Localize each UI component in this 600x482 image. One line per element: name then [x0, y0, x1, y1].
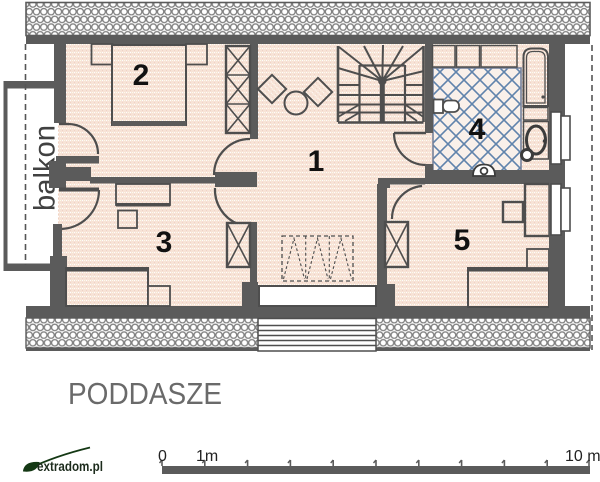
- svg-text:extradom.pl: extradom.pl: [37, 459, 103, 474]
- svg-text:4: 4: [469, 113, 486, 146]
- svg-text:5: 5: [454, 224, 471, 257]
- svg-text:PODDASZE: PODDASZE: [68, 376, 222, 411]
- svg-text:3: 3: [156, 226, 173, 259]
- svg-text:2: 2: [133, 59, 150, 92]
- svg-text:1m: 1m: [196, 448, 218, 465]
- svg-text:0: 0: [158, 448, 167, 465]
- svg-text:10 m: 10 m: [565, 448, 600, 465]
- svg-text:1: 1: [308, 145, 325, 178]
